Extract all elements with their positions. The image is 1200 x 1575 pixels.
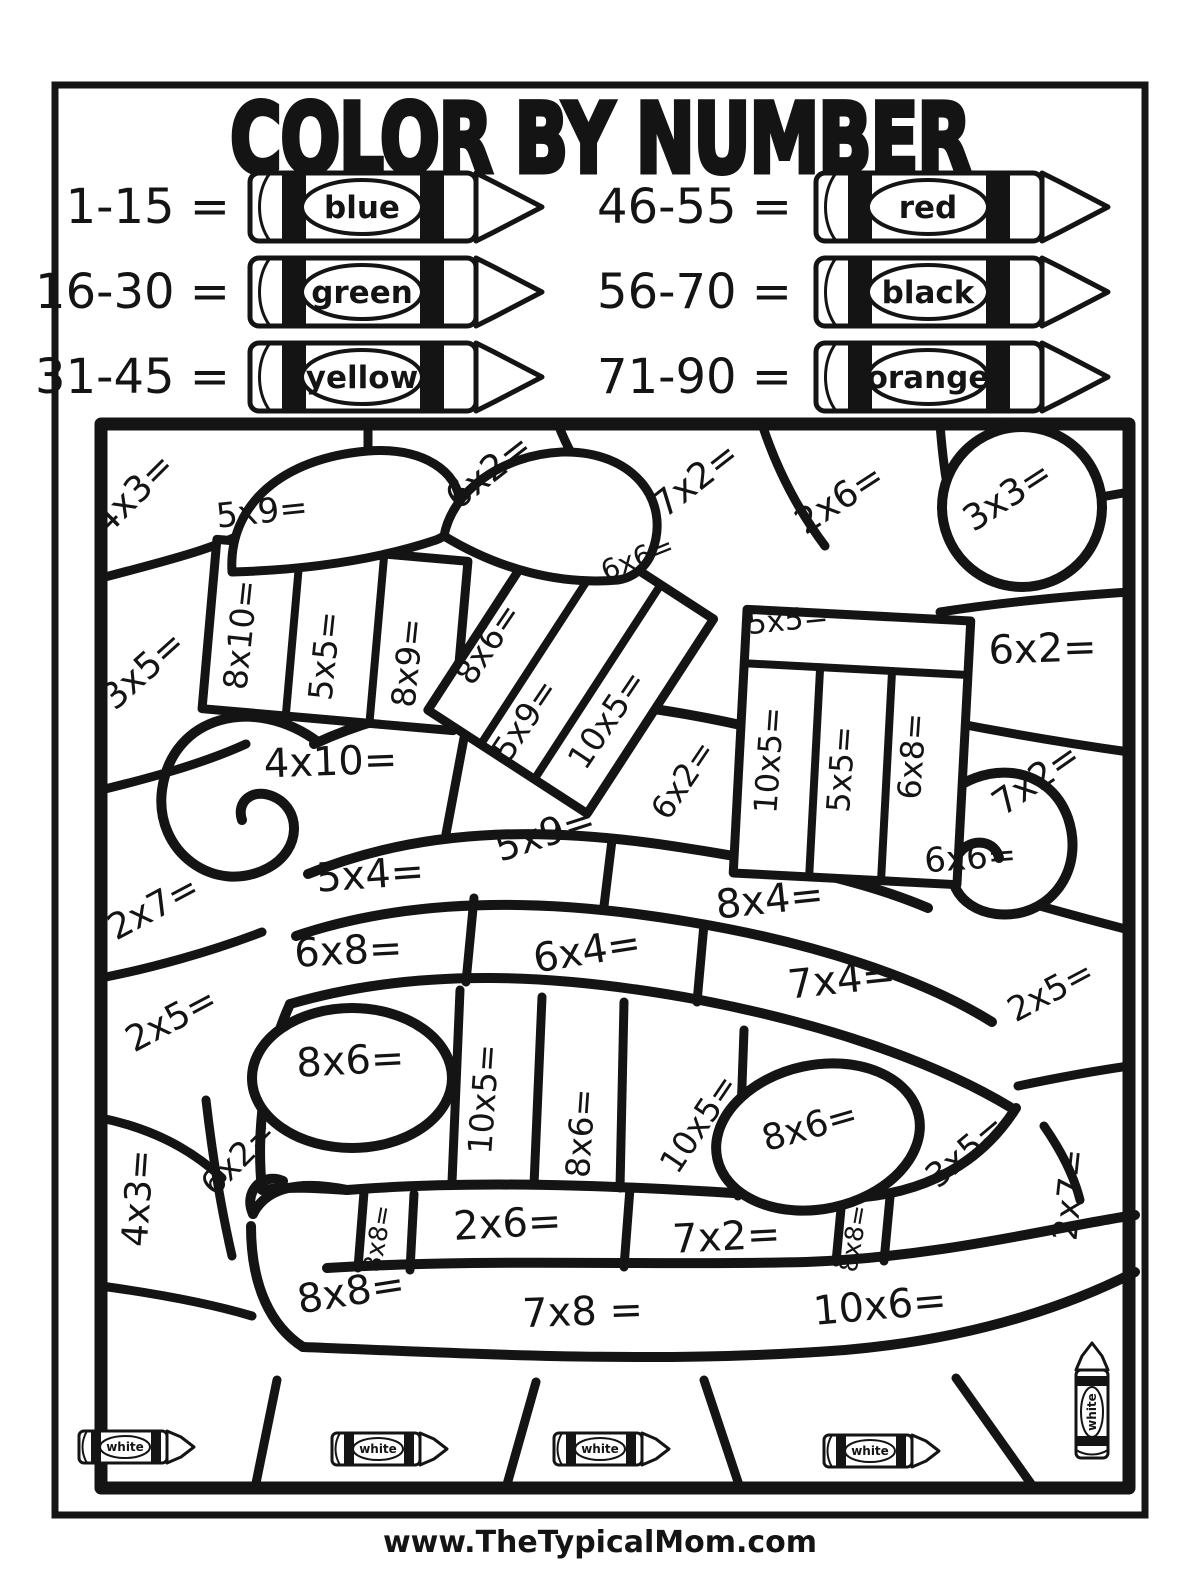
legend-color-name: yellow xyxy=(306,360,418,396)
problem-label: 6x2= xyxy=(643,733,723,826)
white-crayon-icon: white xyxy=(1076,1343,1108,1458)
white-crayon-label: white xyxy=(851,1444,889,1458)
problem-label: 10x6= xyxy=(811,1277,948,1334)
crayon-icon xyxy=(816,173,1108,241)
problem-label: 5x9= xyxy=(489,797,600,871)
problem-label: 5x4= xyxy=(315,848,426,901)
problem-label: 7x8 = xyxy=(521,1287,643,1337)
problem-label: 10x5= xyxy=(746,706,791,815)
problem-label: 2x6= xyxy=(788,456,892,543)
problem-label: 8x4= xyxy=(713,872,825,929)
legend-row: 71-90 =orange xyxy=(597,343,1108,411)
legend-row: 16-30 =green xyxy=(35,258,542,326)
white-crayon-icon: white xyxy=(332,1433,447,1465)
legend-color-name: blue xyxy=(324,190,400,226)
problem-label: 7x2= xyxy=(671,1211,781,1263)
problem-label: 8x8= xyxy=(294,1261,408,1323)
legend-range: 16-30 = xyxy=(35,264,230,320)
white-crayon-label: white xyxy=(581,1442,619,1456)
problem-label: 7x2= xyxy=(645,434,747,526)
problem-label: 4x3= xyxy=(115,1148,163,1248)
problem-label: 6x4= xyxy=(530,920,644,982)
problem-label: 7x2= xyxy=(985,735,1088,824)
problem-label: 2x6= xyxy=(452,1198,562,1250)
problem-label: 7x4= xyxy=(785,952,897,1009)
problem-label: 5x5= xyxy=(819,725,863,814)
legend-range: 31-45 = xyxy=(35,349,230,405)
legend-range: 46-55 = xyxy=(597,179,792,235)
problem-label: 6x8= xyxy=(293,925,403,977)
legend-range: 56-70 = xyxy=(597,264,792,320)
problem-label: 6x6= xyxy=(923,835,1017,881)
color-legend: 1-15 =blue16-30 =green31-45 =yellow46-55… xyxy=(35,173,1108,411)
legend-range: 71-90 = xyxy=(597,349,792,405)
problem-label: 2x7= xyxy=(101,867,206,949)
problem-label: 6x8= xyxy=(890,712,934,801)
legend-row: 31-45 =yellow xyxy=(35,343,542,411)
legend-color-name: red xyxy=(899,190,958,226)
white-crayon-icon: white xyxy=(824,1435,939,1467)
legend-range: 1-15 = xyxy=(66,179,230,235)
legend-color-name: green xyxy=(311,275,413,311)
white-crayon-label: white xyxy=(1085,1393,1099,1431)
problem-label: 4x10= xyxy=(263,737,398,788)
legend-row: 56-70 =black xyxy=(597,258,1108,326)
problem-label: 3x5= xyxy=(918,1107,1014,1197)
problem-label: 2x5= xyxy=(119,979,224,1061)
legend-color-name: black xyxy=(882,275,976,311)
problem-label: 8x6= xyxy=(558,1087,603,1179)
footer-url: www.TheTypicalMom.com xyxy=(383,1525,817,1560)
problem-label: 8x6= xyxy=(295,1035,405,1087)
white-crayon-label: white xyxy=(359,1442,397,1456)
white-crayon-icon: white xyxy=(554,1433,669,1465)
problem-label: 2x5= xyxy=(1001,952,1101,1030)
white-crayon-icon: white xyxy=(79,1431,194,1463)
problem-label: 3x5= xyxy=(93,623,193,719)
legend-row: 46-55 =red xyxy=(597,173,1108,241)
white-crayon-label: white xyxy=(106,1440,144,1454)
legend-color-name: orange xyxy=(867,360,990,396)
worksheet-page: COLOR BY NUMBER 1-15 =blue16-30 =green31… xyxy=(0,0,1200,1575)
legend-row: 1-15 =blue xyxy=(66,173,542,241)
problem-label: 6x2= xyxy=(988,624,1098,674)
problem-label: 10x5= xyxy=(460,1043,507,1156)
